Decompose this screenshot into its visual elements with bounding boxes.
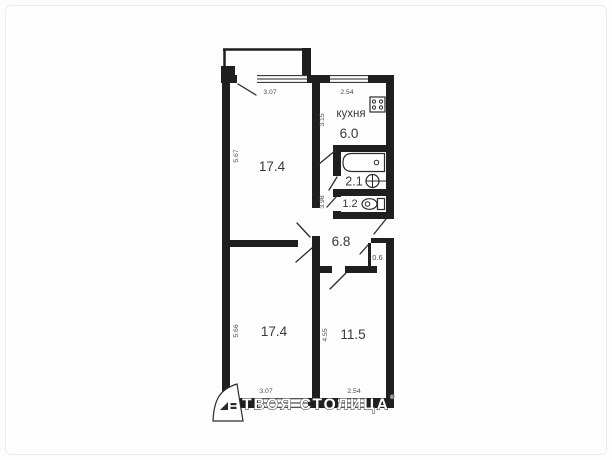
window-top-left-room bbox=[257, 75, 307, 83]
bathroom-area-label: 2.1 bbox=[345, 175, 362, 189]
bathtub-icon bbox=[343, 154, 385, 172]
top-wall-segment-b bbox=[307, 75, 330, 83]
dim-right-room-height: 4.55 bbox=[322, 328, 329, 341]
dim-top-room-height: 5.67 bbox=[233, 149, 240, 162]
right-room-top-wall-left bbox=[312, 266, 332, 273]
hallway-area-label: 6.8 bbox=[332, 234, 351, 249]
interior-walls bbox=[222, 83, 394, 398]
entrance-door-swing bbox=[374, 219, 386, 234]
niche-left-wall bbox=[368, 243, 371, 266]
window-kitchen bbox=[330, 75, 368, 83]
dim-bottom-room-width: 3.07 bbox=[259, 388, 272, 395]
stove-icon bbox=[370, 97, 385, 112]
floor-plan-image: кухня 6.0 17.4 2.1 1.2 6.8 17.4 11.5 3.0… bbox=[0, 0, 612, 460]
toilet-bottom-wall bbox=[333, 212, 394, 219]
bath-left-wall-upper bbox=[333, 145, 341, 176]
watermark: ТВОЯ СТОЛИЦА ® bbox=[213, 384, 395, 421]
dim-top-room-width: 3.07 bbox=[263, 89, 276, 96]
dim-right-room-width: 2.54 bbox=[347, 388, 360, 395]
center-wall-lower bbox=[312, 236, 320, 398]
floor-plan: кухня 6.0 17.4 2.1 1.2 6.8 17.4 11.5 3.0… bbox=[0, 0, 612, 460]
toilet-icon bbox=[362, 199, 385, 210]
toilet-area-label: 1.2 bbox=[342, 198, 357, 210]
kitchen-bottom-wall bbox=[333, 145, 394, 152]
dim-kitchen-width: 2.54 bbox=[340, 89, 353, 96]
top-wall-segment-a bbox=[222, 75, 237, 83]
top-room-door-swing bbox=[297, 223, 310, 237]
right-room-area-label: 11.5 bbox=[340, 327, 365, 342]
rooms-divider-wall bbox=[222, 240, 298, 247]
watermark-logo-icon bbox=[213, 384, 243, 421]
sink-icon bbox=[366, 175, 386, 188]
center-wall-upper bbox=[312, 83, 320, 208]
balcony-door-swing bbox=[238, 84, 256, 95]
exterior-walls bbox=[221, 66, 394, 408]
kitchen-name-label: кухня bbox=[336, 108, 365, 120]
watermark-registered-mark: ® bbox=[390, 394, 395, 401]
dim-niche-width: 0.6 bbox=[372, 253, 382, 262]
right-room-door-swing bbox=[330, 273, 346, 289]
top-room-area-label: 17.4 bbox=[259, 159, 286, 174]
dim-hall-height: 3.98 bbox=[319, 195, 326, 208]
watermark-text: ТВОЯ СТОЛИЦА bbox=[242, 397, 390, 414]
bottom-room-door-swing bbox=[296, 248, 312, 262]
dim-bottom-room-height: 5.66 bbox=[233, 324, 240, 337]
toilet-door-swing bbox=[327, 197, 336, 207]
bathroom-door-swing bbox=[329, 177, 337, 190]
niche-top-stub bbox=[371, 238, 387, 243]
kitchen-area-label: 6.0 bbox=[340, 126, 359, 141]
dim-kitchen-height: 3.15 bbox=[319, 113, 326, 126]
bath-toilet-divider bbox=[333, 189, 394, 196]
niche-door-swing bbox=[360, 245, 368, 254]
right-wall-lower bbox=[386, 238, 394, 398]
right-room-top-wall-right bbox=[345, 266, 377, 273]
bottom-room-area-label: 17.4 bbox=[261, 324, 288, 339]
